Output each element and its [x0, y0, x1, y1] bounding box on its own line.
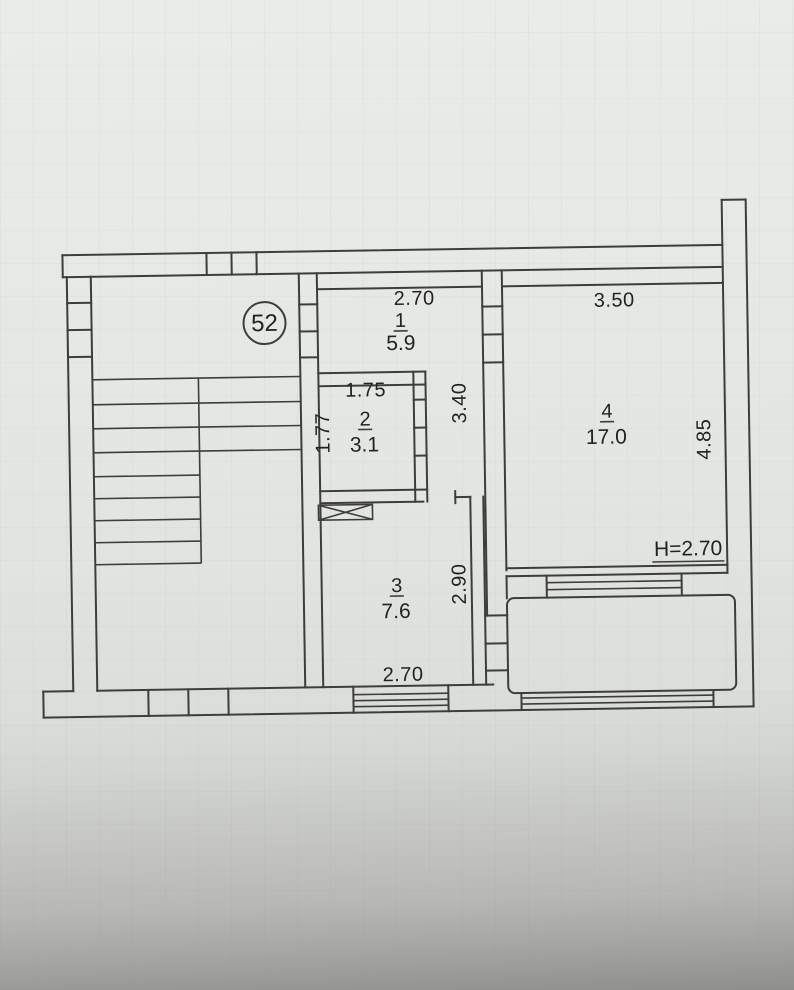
dim-corridor-length: 3.40 [448, 382, 471, 423]
floor-plan-drawing: 52 [0, 0, 794, 990]
apartment-number-label: 52 [251, 310, 278, 337]
stairwell-bottom-door-opening [148, 689, 228, 716]
dim-room3-width: 2.70 [382, 664, 423, 687]
balcony-door-opening [485, 615, 508, 670]
dim-room2-depth: 1.77 [312, 413, 335, 454]
floorplan-photo: 52 [0, 0, 794, 990]
vent-shaft-symbol [318, 504, 372, 520]
dim-room1-width: 2.70 [394, 287, 435, 310]
dim-room3-depth: 2.90 [448, 563, 471, 604]
dim-room4-depth: 4.85 [693, 419, 716, 460]
dim-room4-width: 3.50 [594, 289, 635, 312]
room2-number-label: 2 [359, 408, 370, 430]
room2-door-opening [414, 400, 427, 456]
room2-area-label: 3.1 [350, 433, 380, 456]
room1-walls [317, 270, 507, 618]
ceiling-height-label: H=2.70 [654, 537, 723, 561]
room3-window-symbol [353, 685, 448, 712]
room3-number-label: 3 [391, 575, 402, 597]
stairwell-party-wall [299, 273, 324, 687]
dim-room2-width: 1.75 [345, 379, 386, 402]
outer-walls [36, 199, 754, 717]
apartment-number-badge: 52 [243, 302, 286, 345]
balcony [507, 595, 736, 694]
room3-area-label: 7.6 [381, 600, 411, 623]
labels: 2.70 1 5.9 1.75 1.77 2 3.1 3.40 2.90 3 7… [310, 283, 726, 687]
room1-number-label: 1 [395, 310, 406, 332]
room4-number-label: 4 [601, 401, 612, 423]
room4-area-label: 17.0 [586, 425, 627, 449]
room4-window-symbol [547, 574, 682, 598]
entrance-door-opening [299, 304, 318, 357]
room4-door-opening [482, 306, 503, 362]
room1-area-label: 5.9 [386, 332, 416, 355]
staircase [92, 377, 303, 565]
